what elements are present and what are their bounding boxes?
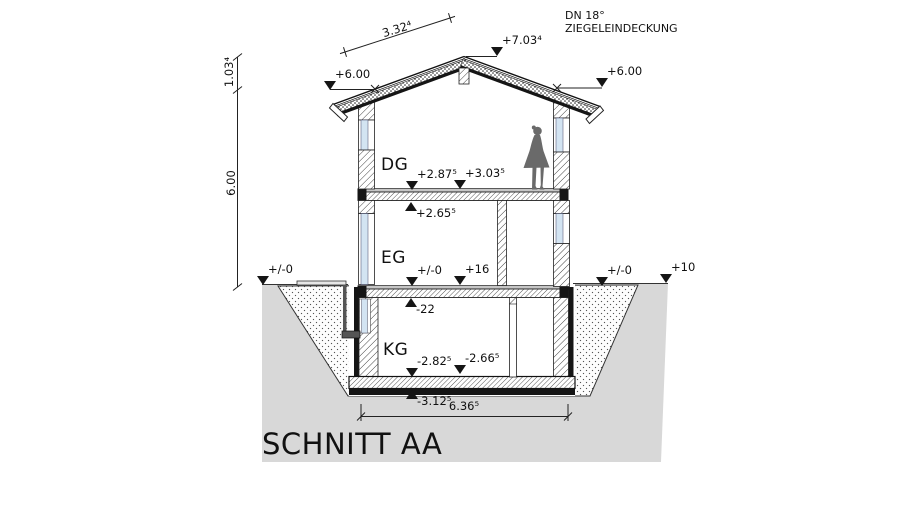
light-well-wall [343,285,347,333]
level-value: +6.00 [335,67,370,81]
eg-window-left [361,214,368,285]
dg-window-left [361,120,368,150]
level-triangle-down-icon [406,277,418,286]
level-value: -3.12⁵ [417,394,451,408]
level-triangle-down-icon [406,368,418,377]
level-value: +6.00 [607,64,642,78]
level-triangle-down-icon [660,274,672,283]
dim-ridge-to-eave: 1.03⁴ [222,47,236,97]
level-value: +/-0 [607,263,632,277]
level-triangle-down-icon [454,365,466,374]
eg-window-right [556,214,563,244]
section-drawing-canvas: DG EG KG SCHNITT AA DN 18° ZIEGELEINDECK… [0,0,900,507]
floor-slab-kg [349,377,575,389]
basement-right-wall [554,290,569,377]
floor-label-kg: KG [383,340,408,360]
level-value: +/-0 [268,262,293,276]
floor-label-eg: EG [381,248,406,268]
level-value: -22 [416,302,435,316]
person-figure [524,126,550,190]
level-triangle-down-icon [491,47,503,56]
roof-note-pitch: DN 18° [565,9,678,22]
dg-window-right [556,118,563,152]
basement-left-insulation [354,287,359,390]
eg-floor-slab [358,286,569,298]
basement-window [362,299,368,333]
basement-right-insulation [569,287,574,390]
level-value: +10 [671,260,695,274]
level-value: +3.03⁵ [465,166,505,180]
dg-floor-slab [358,189,569,201]
level-value: -2.66⁵ [465,351,499,365]
level-triangle-down-icon [324,81,336,90]
level-value: +16 [465,262,489,276]
ridge-purlin [459,68,469,84]
roof-lining-right [460,65,597,118]
level-triangle-down-icon [454,276,466,285]
level-value: +/-0 [417,263,442,277]
slab-sealing-layer [349,389,575,396]
roof-note-covering: ZIEGELEINDECKUNG [565,22,678,35]
kg-interior-wall [510,292,517,377]
level-value: +7.03⁴ [502,33,542,47]
level-value: +2.87⁵ [417,167,457,181]
level-triangle-down-icon [454,180,466,189]
level-value: -2.82⁵ [417,354,451,368]
level-triangle-down-icon [257,276,269,285]
roof-note: DN 18° ZIEGELEINDECKUNG [565,9,678,35]
eg-interior-wall [498,201,507,286]
floor-label-dg: DG [381,155,408,175]
section-title: SCHNITT AA [262,427,442,461]
section-drawing-svg [0,0,900,507]
eave-level-cross-left [371,85,379,93]
light-well-floor [342,331,360,338]
level-triangle-down-icon [406,181,418,190]
dim-eave-to-ground: 6.00 [224,158,238,208]
level-value: +2.65⁵ [416,206,456,220]
level-triangle-down-icon [596,78,608,87]
level-triangle-down-icon [596,277,608,286]
